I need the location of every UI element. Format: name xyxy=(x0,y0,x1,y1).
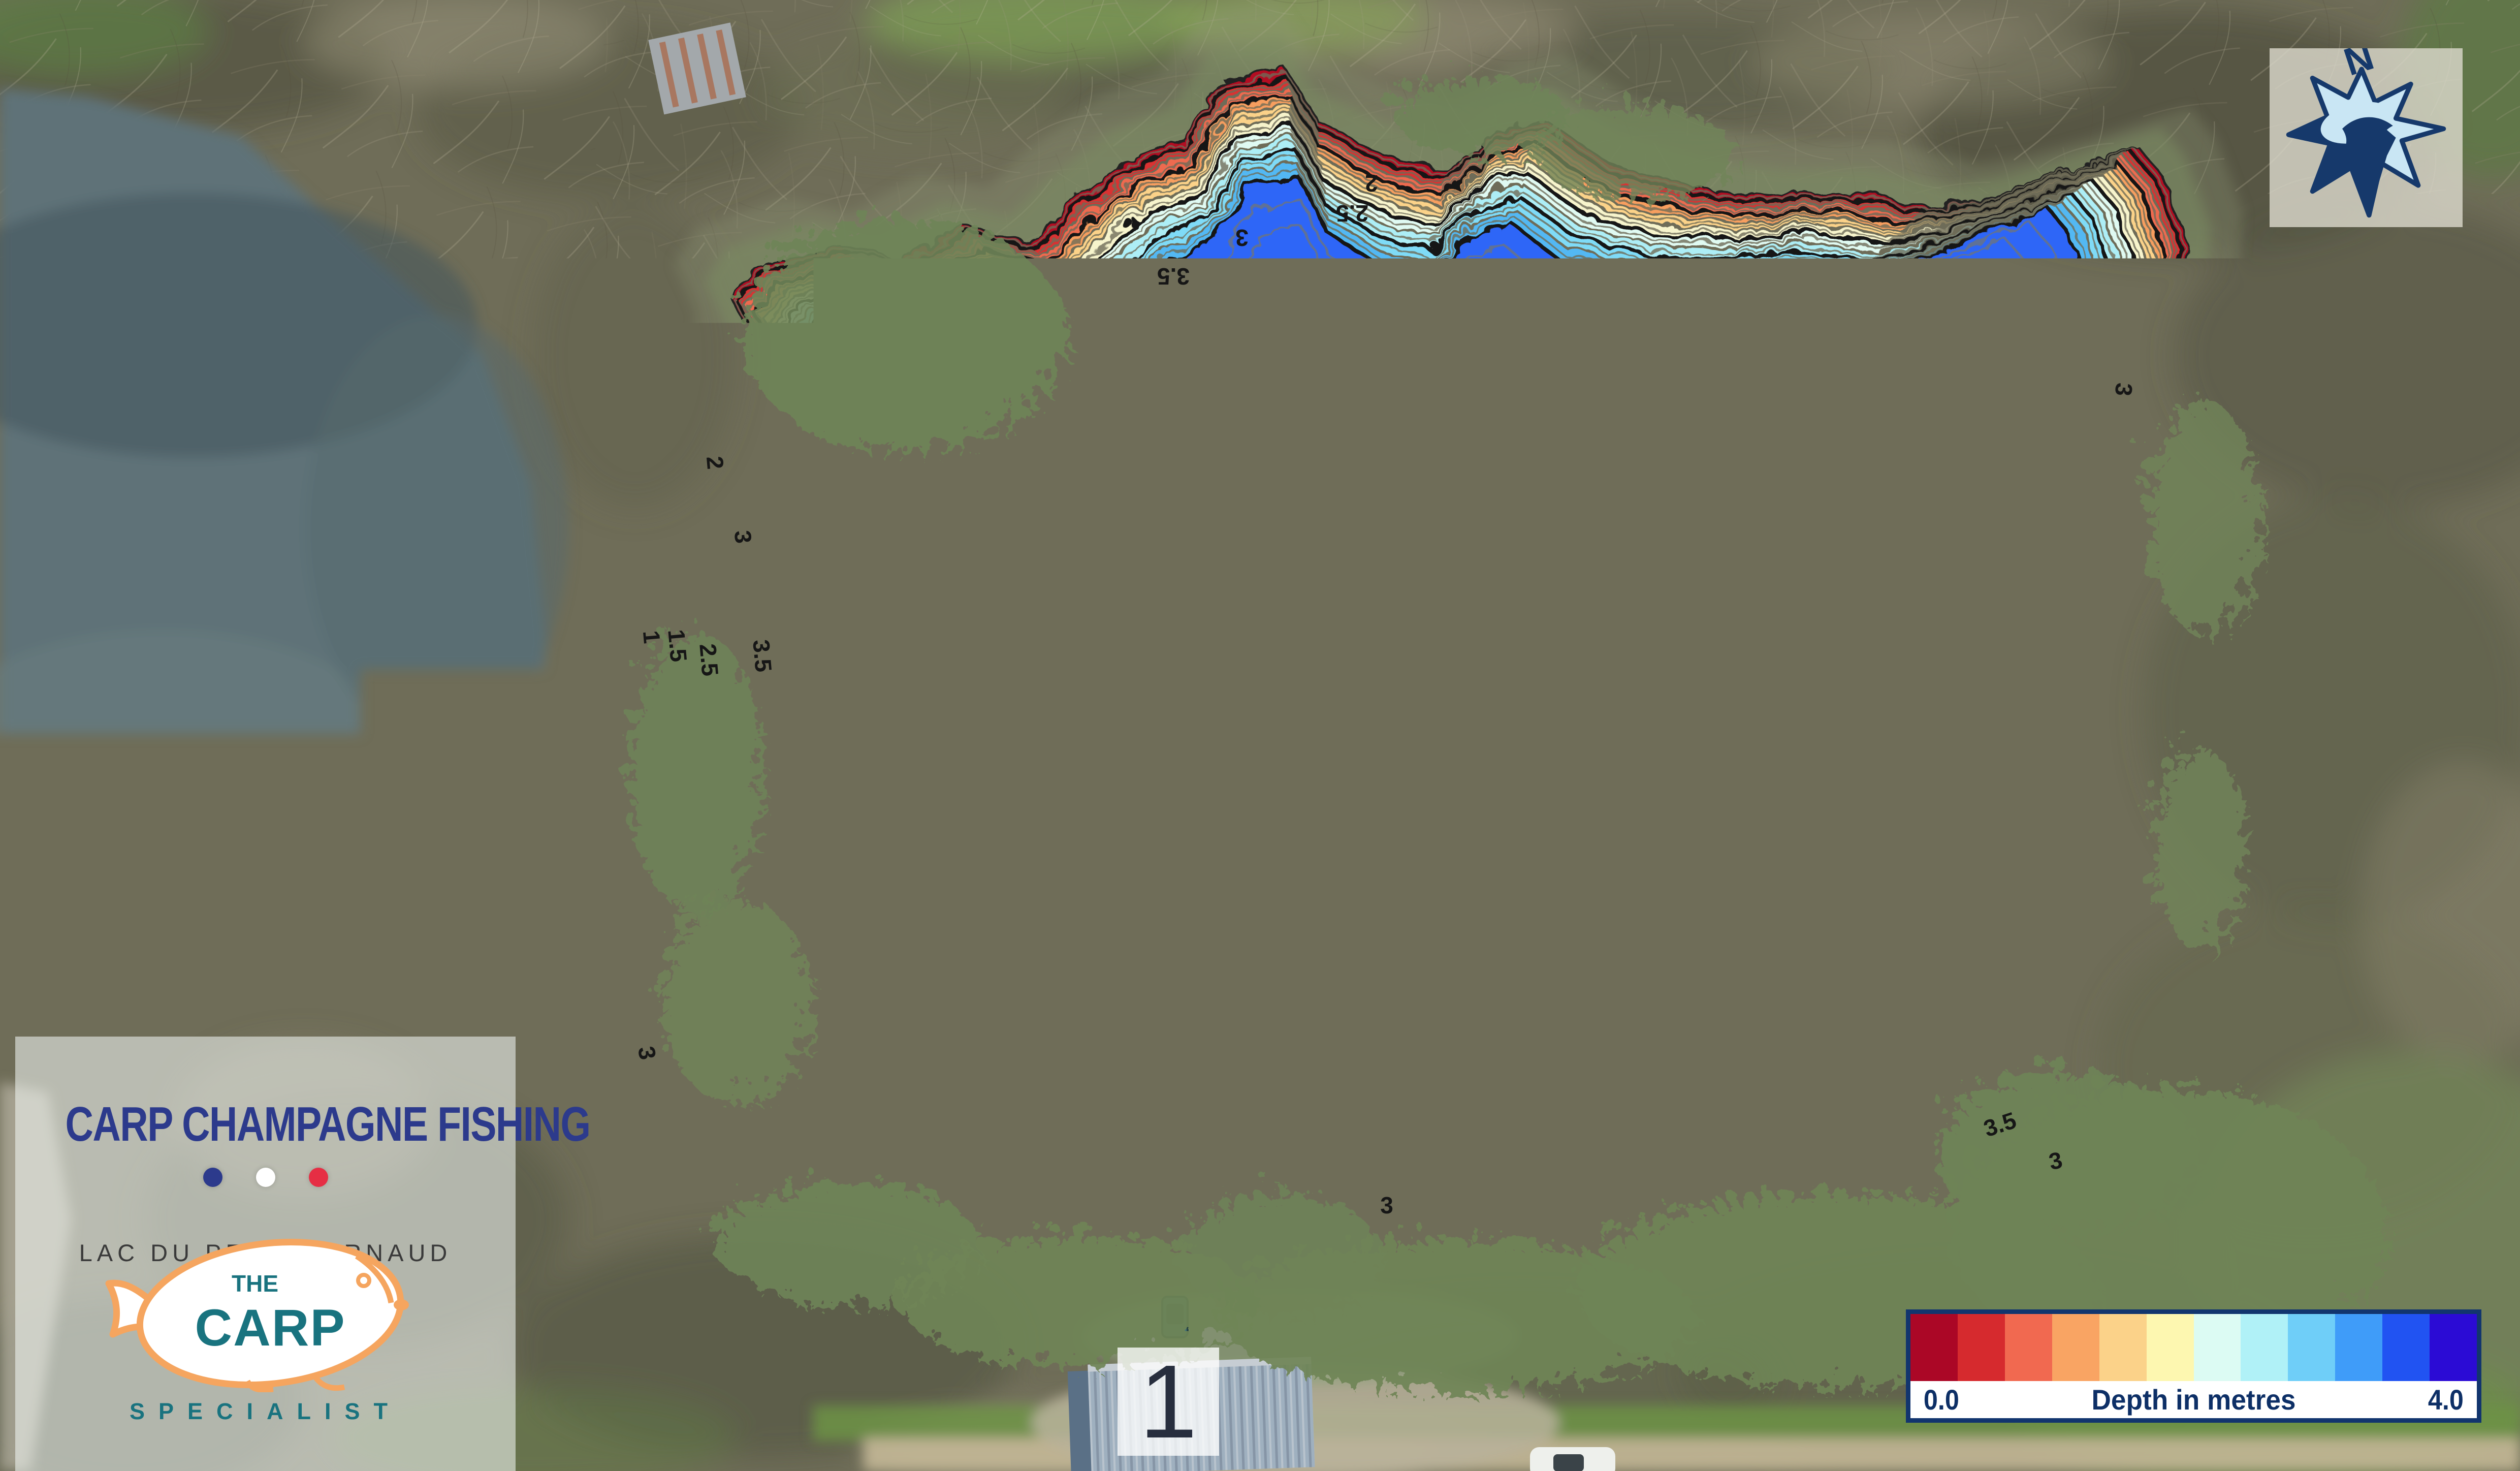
flag-dot-red xyxy=(309,1168,328,1187)
legend-swatch xyxy=(2147,1314,2194,1381)
contour-depth-label: 2 xyxy=(701,455,729,471)
flag-dot-blue xyxy=(203,1168,222,1187)
north-star-icon: N xyxy=(2270,48,2463,227)
contour-depth-label: 2.5 xyxy=(1336,200,1368,227)
flag-dot-white xyxy=(256,1168,275,1187)
legend-swatch xyxy=(1910,1314,1958,1381)
contour-depth-label: 3 xyxy=(729,529,757,545)
legend-swatch xyxy=(2241,1314,2288,1381)
legend-swatch xyxy=(2430,1314,2477,1381)
legend-swatch xyxy=(2052,1314,2099,1381)
contour-depth-label: 3.5 xyxy=(748,638,777,673)
legend-title: Depth in metres xyxy=(1925,1383,2463,1416)
contour-depth-label: 3 xyxy=(1380,1192,1393,1218)
contour-depth-label: 1 xyxy=(638,630,665,645)
white-car xyxy=(1530,1447,1615,1471)
carp-mouth xyxy=(394,1299,409,1310)
logo-the-label: THE xyxy=(232,1270,278,1297)
contour-depth-label: 1.5 xyxy=(663,628,692,663)
depth-legend: 0.0 Depth in metres 4.0 xyxy=(1906,1309,2481,1423)
page-title: CARP CHAMPAGNE FISHING xyxy=(66,1097,466,1152)
contour-depth-label: 2 xyxy=(1365,170,1378,197)
contour-depth-label: 2.5 xyxy=(694,642,723,677)
contour-depth-label: 3.5 xyxy=(1157,263,1190,290)
carp-specialist-logo-icon: THE CARP xyxy=(103,1219,428,1392)
logo-carp-label: CARP xyxy=(195,1299,345,1357)
legend-swatch xyxy=(2099,1314,2147,1381)
logo-specialist-label: SPECIALIST xyxy=(15,1398,516,1425)
legend-swatch xyxy=(2335,1314,2382,1381)
compass-north-label: N xyxy=(2339,48,2379,84)
compass-rose: N xyxy=(2270,48,2463,227)
legend-max-depth: 4.0 xyxy=(2428,1383,2464,1416)
bathymetric-map-page: 22.533.533.53332311.52.53.5 CARP CHAMPAG… xyxy=(0,0,2520,1471)
legend-swatch xyxy=(2005,1314,2052,1381)
swim-number: 1 xyxy=(1139,1342,1197,1462)
french-flag-dots xyxy=(15,1168,516,1187)
legend-swatch xyxy=(1958,1314,2005,1381)
legend-swatch xyxy=(2288,1314,2335,1381)
legend-swatch xyxy=(2382,1314,2430,1381)
depth-color-scale xyxy=(1910,1314,2477,1381)
legend-swatch xyxy=(2194,1314,2241,1381)
branding-panel: CARP CHAMPAGNE FISHING LAC DU PETIT TARN… xyxy=(15,1037,516,1471)
contour-depth-label: 3 xyxy=(2110,382,2138,397)
contour-depth-label: 3 xyxy=(1235,225,1249,251)
swim-number-marker: 1 xyxy=(1118,1348,1219,1456)
